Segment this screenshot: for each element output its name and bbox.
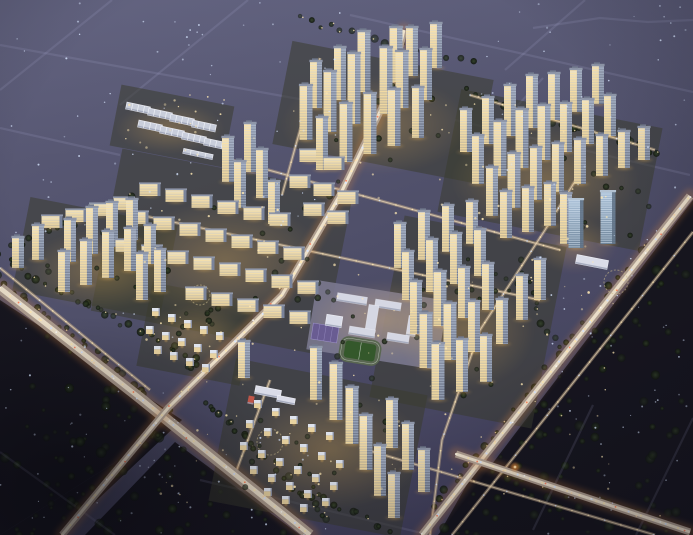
vignette	[0, 0, 693, 535]
scene-canvas	[0, 0, 693, 535]
aerial-city-render	[0, 0, 693, 535]
